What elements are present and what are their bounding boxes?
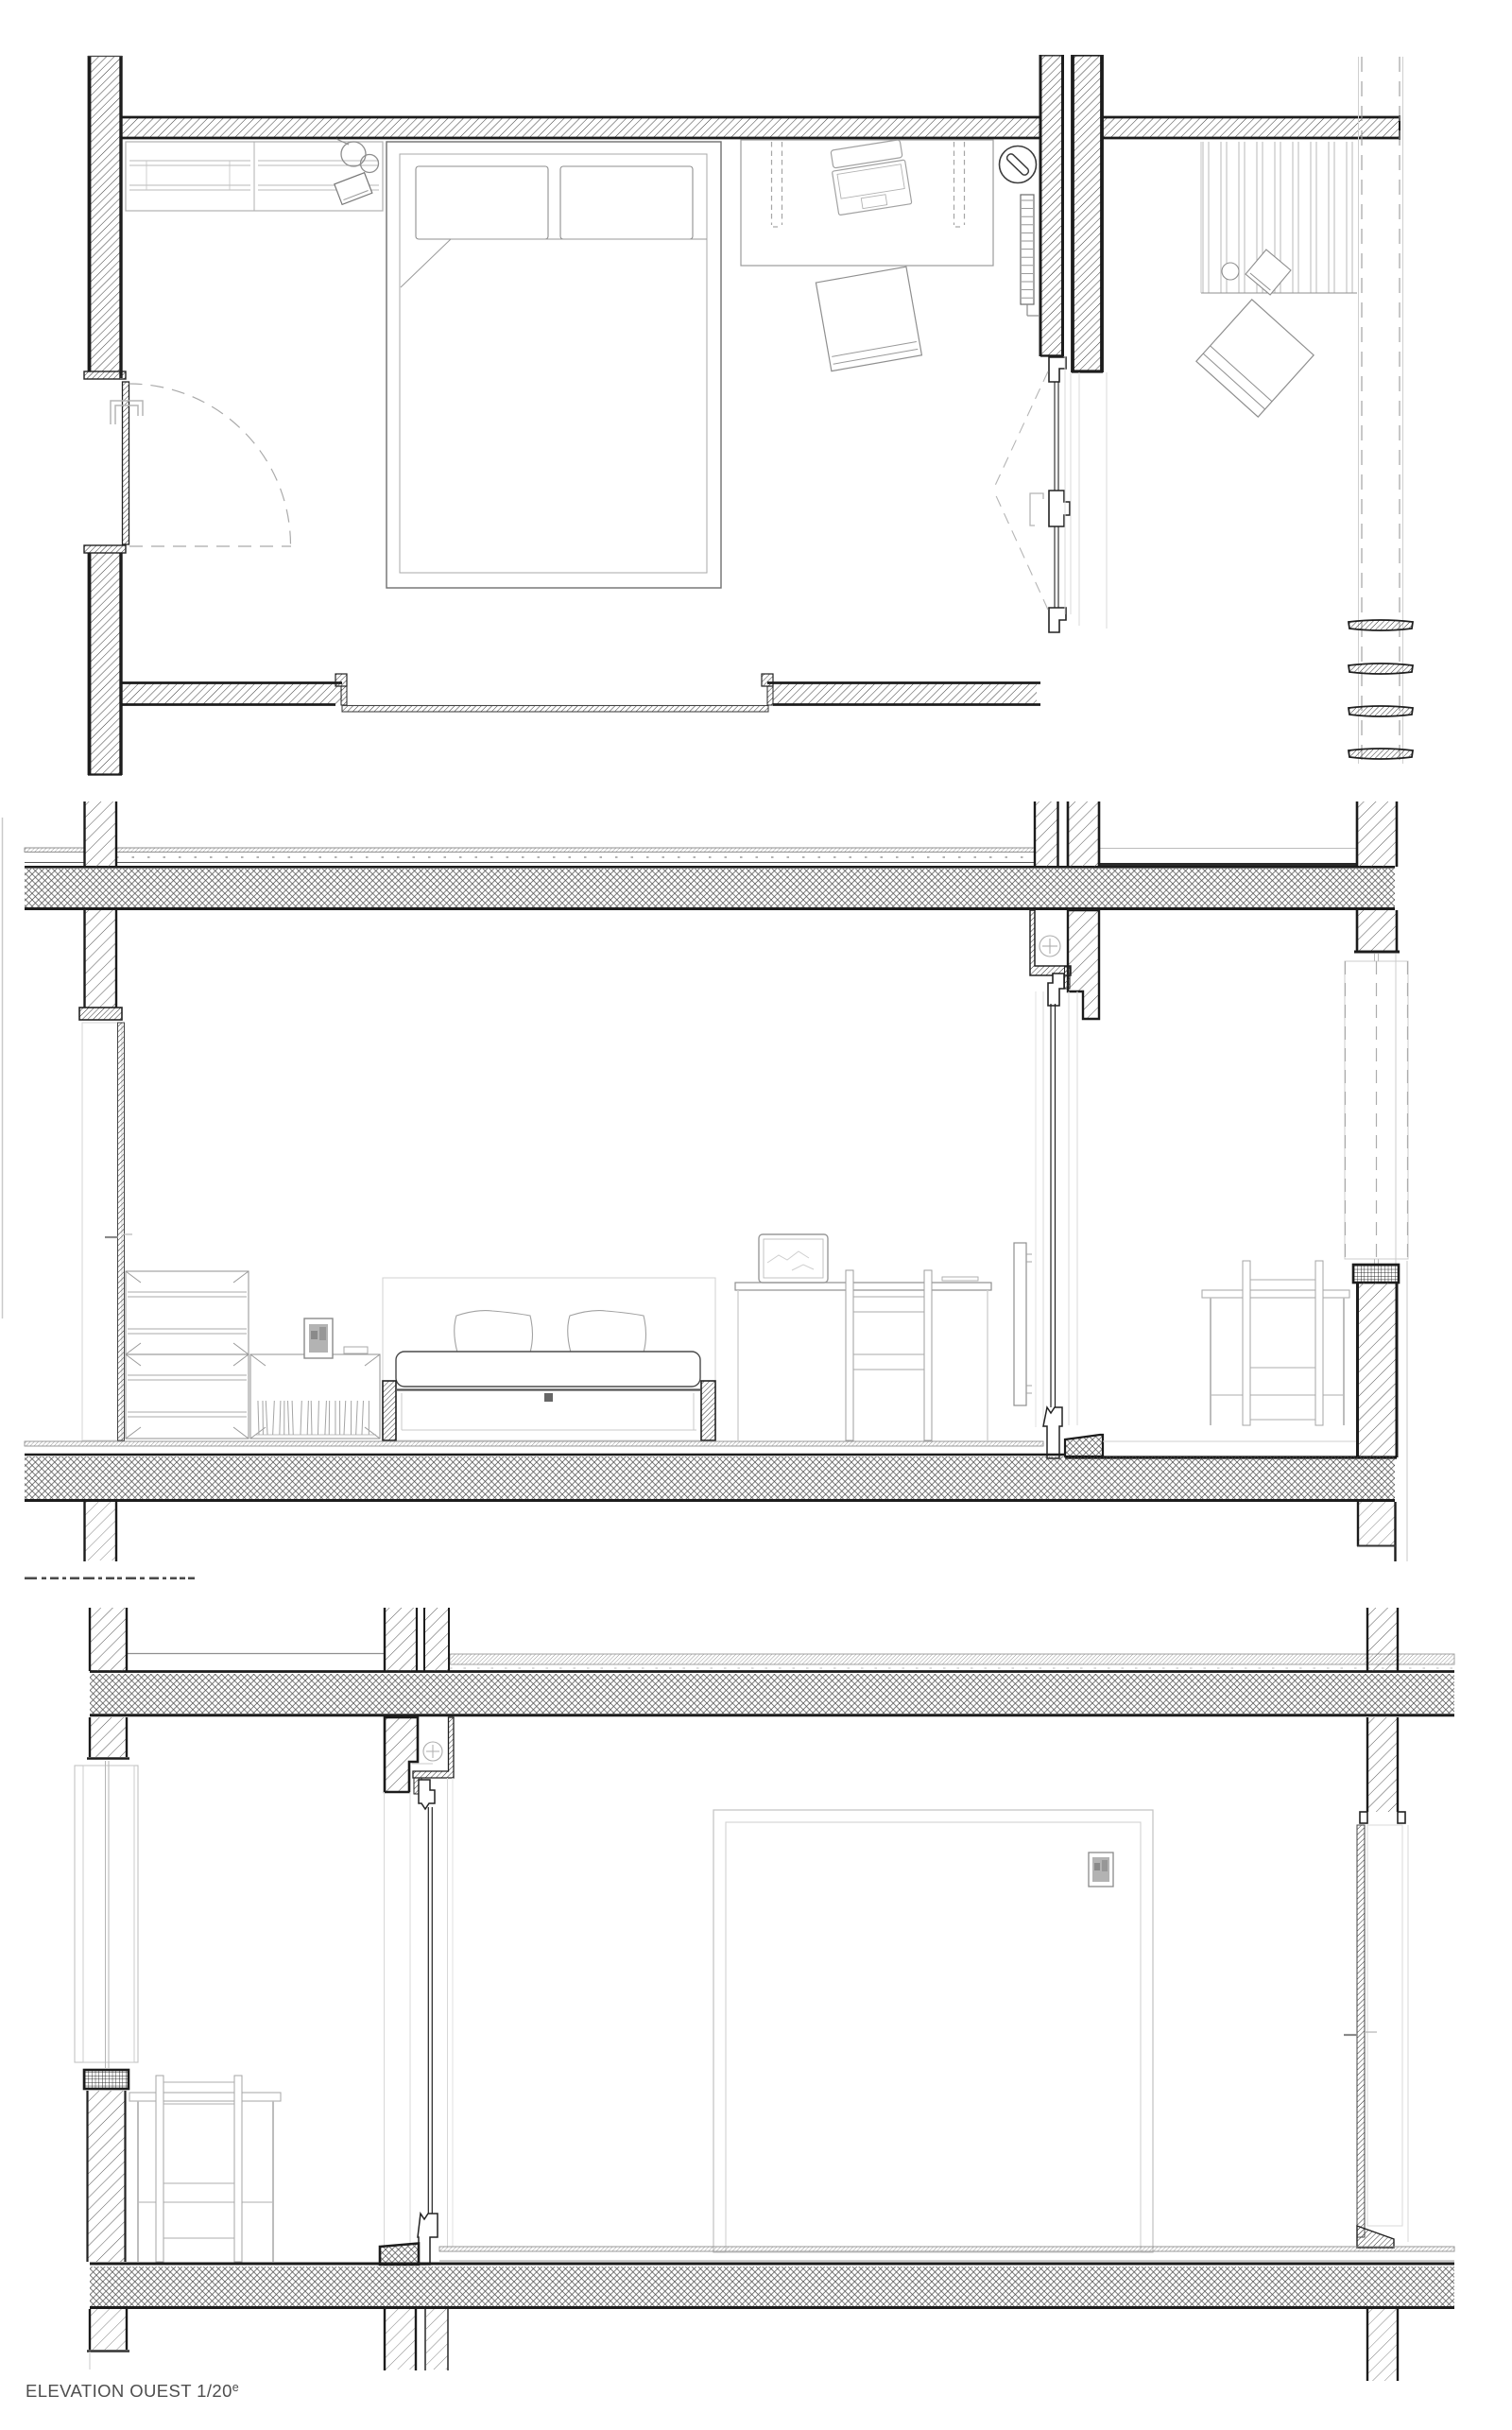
svg-text:ELEVATION OUEST 1/20e: ELEVATION OUEST 1/20e <box>26 2381 239 2401</box>
